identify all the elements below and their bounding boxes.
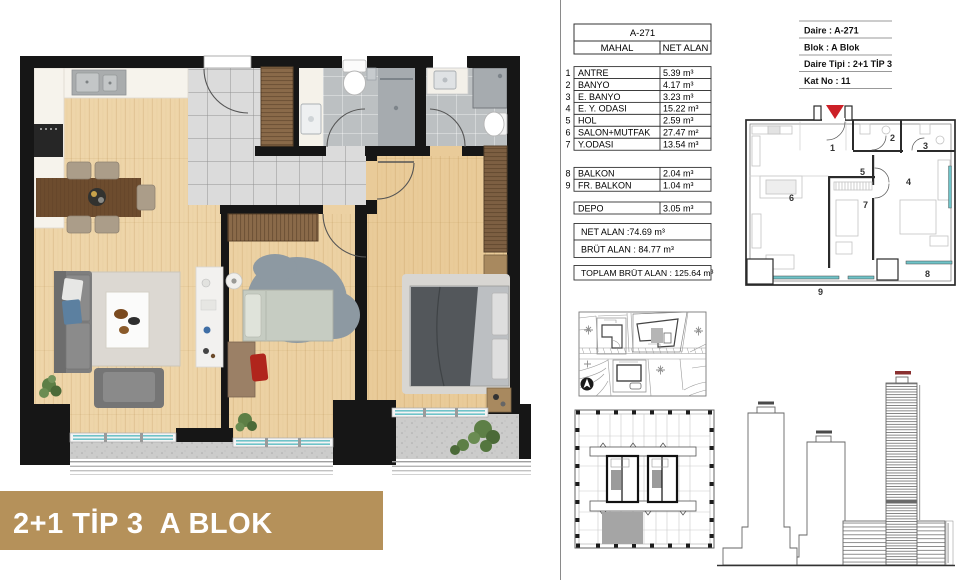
svg-text:7: 7 <box>565 140 570 150</box>
svg-text:3.23 m³: 3.23 m³ <box>663 92 694 102</box>
svg-text:2.04 m³: 2.04 m³ <box>663 169 694 179</box>
svg-text:FR. BALKON: FR. BALKON <box>578 181 632 191</box>
svg-text:E. BANYO: E. BANYO <box>578 92 621 102</box>
svg-text:3: 3 <box>565 92 570 102</box>
svg-text:6: 6 <box>565 128 570 138</box>
svg-text:2: 2 <box>565 80 570 90</box>
svg-text:1.04 m³: 1.04 m³ <box>663 181 694 191</box>
svg-text:13.54 m³: 13.54 m³ <box>663 140 699 150</box>
svg-text:5: 5 <box>860 167 865 177</box>
svg-text:2.59 m³: 2.59 m³ <box>663 116 694 126</box>
svg-text:Kat No : 11: Kat No : 11 <box>804 76 851 86</box>
svg-text:Daire : A-271: Daire : A-271 <box>804 26 859 36</box>
svg-text:8: 8 <box>565 169 570 179</box>
svg-text:7: 7 <box>863 200 868 210</box>
svg-text:BRÜT ALAN : 84.77 m³: BRÜT ALAN : 84.77 m³ <box>581 245 674 255</box>
svg-text:1: 1 <box>830 143 835 153</box>
svg-text:3.05 m³: 3.05 m³ <box>663 203 694 213</box>
svg-text:2+1 TİP 3 A BLOK: 2+1 TİP 3 A BLOK <box>13 508 273 540</box>
svg-text:SALON+MUTFAK: SALON+MUTFAK <box>578 128 650 138</box>
svg-text:9: 9 <box>565 181 570 191</box>
svg-text:4.17 m³: 4.17 m³ <box>663 80 694 90</box>
svg-text:TOPLAM BRÜT ALAN : 125.64 m³: TOPLAM BRÜT ALAN : 125.64 m³ <box>581 268 714 278</box>
svg-text:NET ALAN: NET ALAN <box>663 43 709 54</box>
svg-text:E. Y. ODASI: E. Y. ODASI <box>578 104 627 114</box>
svg-text:Y.ODASI: Y.ODASI <box>578 140 613 150</box>
svg-text:3: 3 <box>923 141 928 151</box>
svg-text:8: 8 <box>925 269 930 279</box>
svg-text:5: 5 <box>565 116 570 126</box>
svg-text:A-271: A-271 <box>630 28 655 39</box>
svg-text:6: 6 <box>789 193 794 203</box>
svg-text:Blok : A Blok: Blok : A Blok <box>804 43 860 53</box>
svg-text:DEPO: DEPO <box>578 203 604 213</box>
svg-text:4: 4 <box>906 177 911 187</box>
svg-text:9: 9 <box>818 287 823 297</box>
svg-text:15.22 m³: 15.22 m³ <box>663 104 699 114</box>
svg-text:1: 1 <box>565 68 570 78</box>
svg-text:MAHAL: MAHAL <box>601 43 634 54</box>
svg-text:NET ALAN :74.69 m³: NET ALAN :74.69 m³ <box>581 227 665 237</box>
svg-text:4: 4 <box>565 104 570 114</box>
svg-text:5.39 m³: 5.39 m³ <box>663 68 694 78</box>
svg-text:HOL: HOL <box>578 116 597 126</box>
svg-text:Daire Tipi : 2+1 TİP 3: Daire Tipi : 2+1 TİP 3 <box>804 59 892 69</box>
svg-text:27.47 m²: 27.47 m² <box>663 128 699 138</box>
svg-text:BALKON: BALKON <box>578 169 615 179</box>
svg-text:BANYO: BANYO <box>578 80 610 90</box>
svg-text:2: 2 <box>890 133 895 143</box>
svg-text:ANTRE: ANTRE <box>578 68 609 78</box>
